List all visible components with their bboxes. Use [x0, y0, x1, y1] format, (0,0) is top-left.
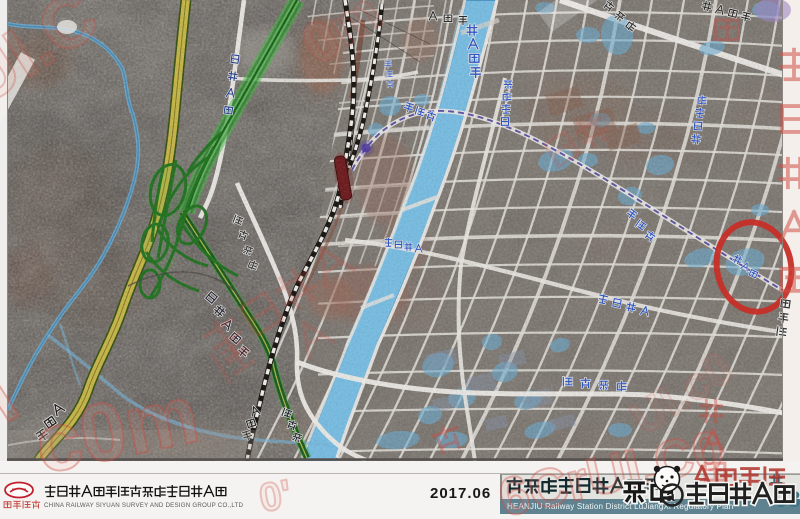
svg-text:a: a: [666, 488, 675, 505]
svg-text:0': 0': [256, 472, 295, 519]
svg-text:UI.C: UI.C: [0, 0, 111, 121]
svg-text:c0m: c0m: [27, 368, 206, 491]
svg-text:0m: 0m: [290, 0, 392, 76]
